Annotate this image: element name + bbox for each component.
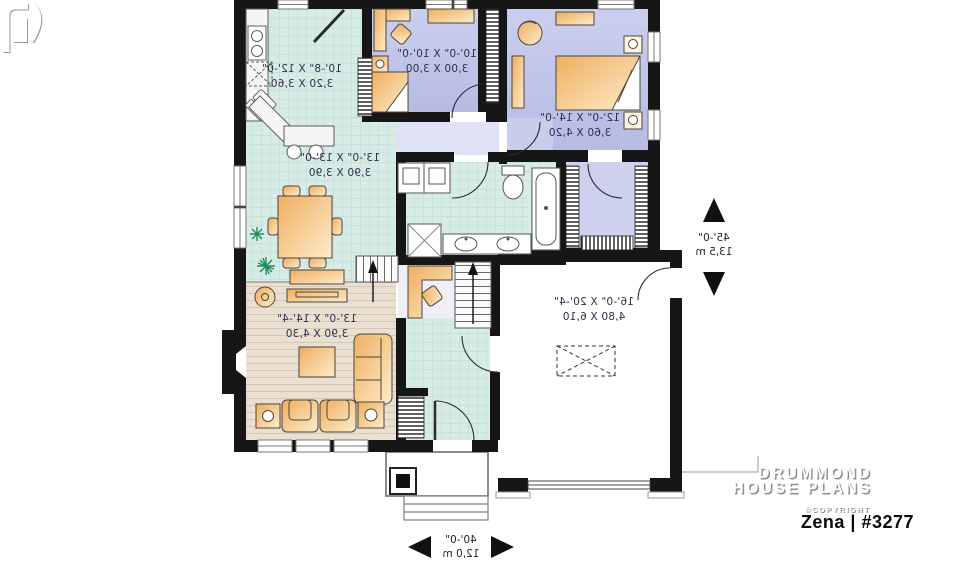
wall-foyer-bottom2 [472, 440, 498, 452]
porch-step [404, 496, 488, 504]
coffee-table [299, 347, 335, 377]
shower [408, 224, 441, 257]
wall-garage-bottom-right [650, 478, 682, 492]
desk [374, 9, 386, 51]
garage-sill-left [496, 492, 530, 498]
kitchen-island [284, 126, 334, 146]
sideboard [290, 270, 344, 284]
toilet [502, 166, 524, 199]
window [258, 440, 292, 452]
window [648, 32, 660, 62]
garage-size-metric: 4,80 X 6,10 [563, 311, 626, 323]
dimension-width: 40'-0" 12,0 m [408, 534, 514, 560]
stairs-basement [356, 256, 398, 282]
width-imperial: 40'-0" [445, 534, 477, 546]
walkin-shelf-bottom [581, 236, 633, 250]
refrigerator [358, 58, 372, 116]
wall-garage-bottom-left [498, 478, 528, 492]
wall-foyer-garage2 [490, 372, 500, 440]
depth-metric: 13,5 m [696, 246, 733, 258]
chair [268, 218, 278, 235]
dimension-arrow-down [703, 272, 725, 296]
window [454, 0, 467, 9]
dimension-arrow-left [408, 536, 431, 558]
window [278, 0, 308, 9]
living-size-imperial: 13'-0" X 14'-4" [277, 313, 357, 325]
lamp [629, 40, 638, 49]
porch-step [404, 512, 488, 520]
dresser [428, 9, 474, 23]
bedroom-closet-shelf [486, 9, 499, 103]
window [234, 208, 246, 248]
porch-column-core [396, 474, 410, 488]
garage-size-imperial: 16'-0" X 20'-4" [554, 296, 634, 308]
window [598, 0, 634, 9]
armchair [320, 400, 356, 432]
dining-size-imperial: 13'-0" X 13'-0" [300, 152, 380, 164]
dimension-depth: 45'-0" 13,5 m [696, 198, 733, 296]
wall-garage-right [670, 250, 682, 268]
burner [252, 46, 263, 57]
entry-closet [398, 396, 424, 438]
kitchen-size-imperial: 10'-8" X 12'-0" [262, 63, 342, 75]
dresser-tall [512, 56, 524, 108]
window [234, 166, 246, 206]
kitchen-size-metric: 3,20 X 3,60 [271, 78, 334, 90]
wall-garage-right2 [670, 298, 682, 490]
floor-plan: 10'-8" X 12'-0" 3,20 X 3,60 13'-0" X 13'… [0, 0, 960, 569]
window [426, 0, 452, 9]
bedroom-size-metric: 3,00 X 3,00 [406, 63, 469, 75]
chair [283, 186, 300, 196]
washer-dryer [398, 163, 450, 193]
bedroom-size-imperial: 10'-0" X 10'-0" [397, 48, 477, 60]
floor-plan-page: 10'-8" X 12'-0" 3,20 X 3,60 13'-0" X 13'… [0, 0, 960, 569]
round-side-table [255, 287, 275, 307]
hall-floor [396, 122, 499, 155]
wall-master-bottom [507, 150, 588, 162]
sofa [354, 334, 392, 404]
depth-imperial: 45'-0" [698, 232, 730, 244]
garage-floor [500, 262, 670, 478]
porch-step [404, 504, 488, 512]
wall-bedroom-bottom [362, 112, 450, 122]
wall-entry-closet [396, 388, 428, 396]
rear-step-outline [682, 456, 758, 472]
window [334, 440, 368, 452]
dresser [556, 12, 594, 25]
chair [309, 258, 326, 268]
wall-kitchen-bedroom [362, 0, 372, 58]
lamp [629, 116, 638, 125]
chair [283, 258, 300, 268]
wall-master-left [499, 0, 507, 122]
chair [309, 186, 326, 196]
window [648, 110, 660, 140]
dimension-arrow-right [491, 536, 514, 558]
walkin-shelf-right [635, 166, 648, 248]
armchair [282, 400, 318, 432]
lamp [365, 409, 377, 421]
burner [252, 31, 263, 42]
living-size-metric: 3,90 X 4,30 [286, 328, 349, 340]
desk [386, 9, 410, 21]
walkin-shelf-left [566, 166, 579, 248]
vanity-sinks [443, 234, 531, 254]
bathtub [532, 168, 560, 250]
garage-sill-right [648, 492, 684, 498]
lamp [376, 60, 384, 68]
chair [332, 218, 342, 235]
master-size-metric: 3,60 X 4,20 [549, 127, 612, 139]
wall-foyer-bottom [406, 440, 433, 452]
wall-bedroom-closet [478, 0, 486, 103]
wall-master-bottom2 [622, 150, 660, 162]
dining-table [278, 196, 332, 258]
stool [287, 145, 301, 159]
master-size-imperial: 12'-0" X 14'-0" [540, 112, 620, 124]
window [296, 440, 330, 452]
wall-bath-top2 [488, 152, 507, 162]
width-metric: 12,0 m [443, 548, 480, 560]
lamp [263, 411, 274, 422]
dining-size-metric: 3,90 X 3,90 [309, 167, 372, 179]
dimension-arrow-up [703, 198, 725, 222]
plant [250, 227, 264, 241]
